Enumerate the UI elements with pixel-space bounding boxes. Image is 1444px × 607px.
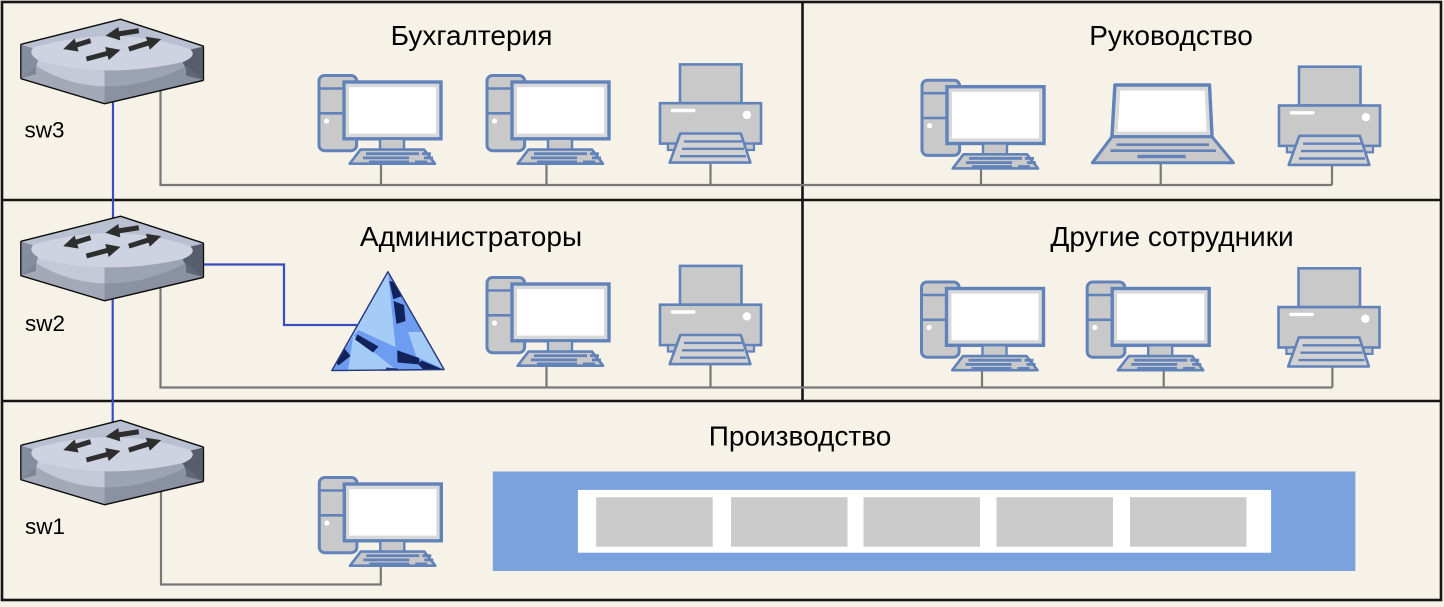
svg-text:Бухгалтерия: Бухгалтерия [391, 20, 553, 51]
svg-text:Администраторы: Администраторы [360, 221, 582, 252]
svg-text:Другие сотрудники: Другие сотрудники [1050, 221, 1293, 252]
svg-text:sw2: sw2 [25, 311, 65, 336]
svg-text:sw3: sw3 [25, 118, 65, 143]
svg-text:Производство: Производство [709, 421, 892, 452]
svg-text:sw1: sw1 [25, 514, 65, 539]
svg-text:Руководство: Руководство [1089, 20, 1253, 51]
